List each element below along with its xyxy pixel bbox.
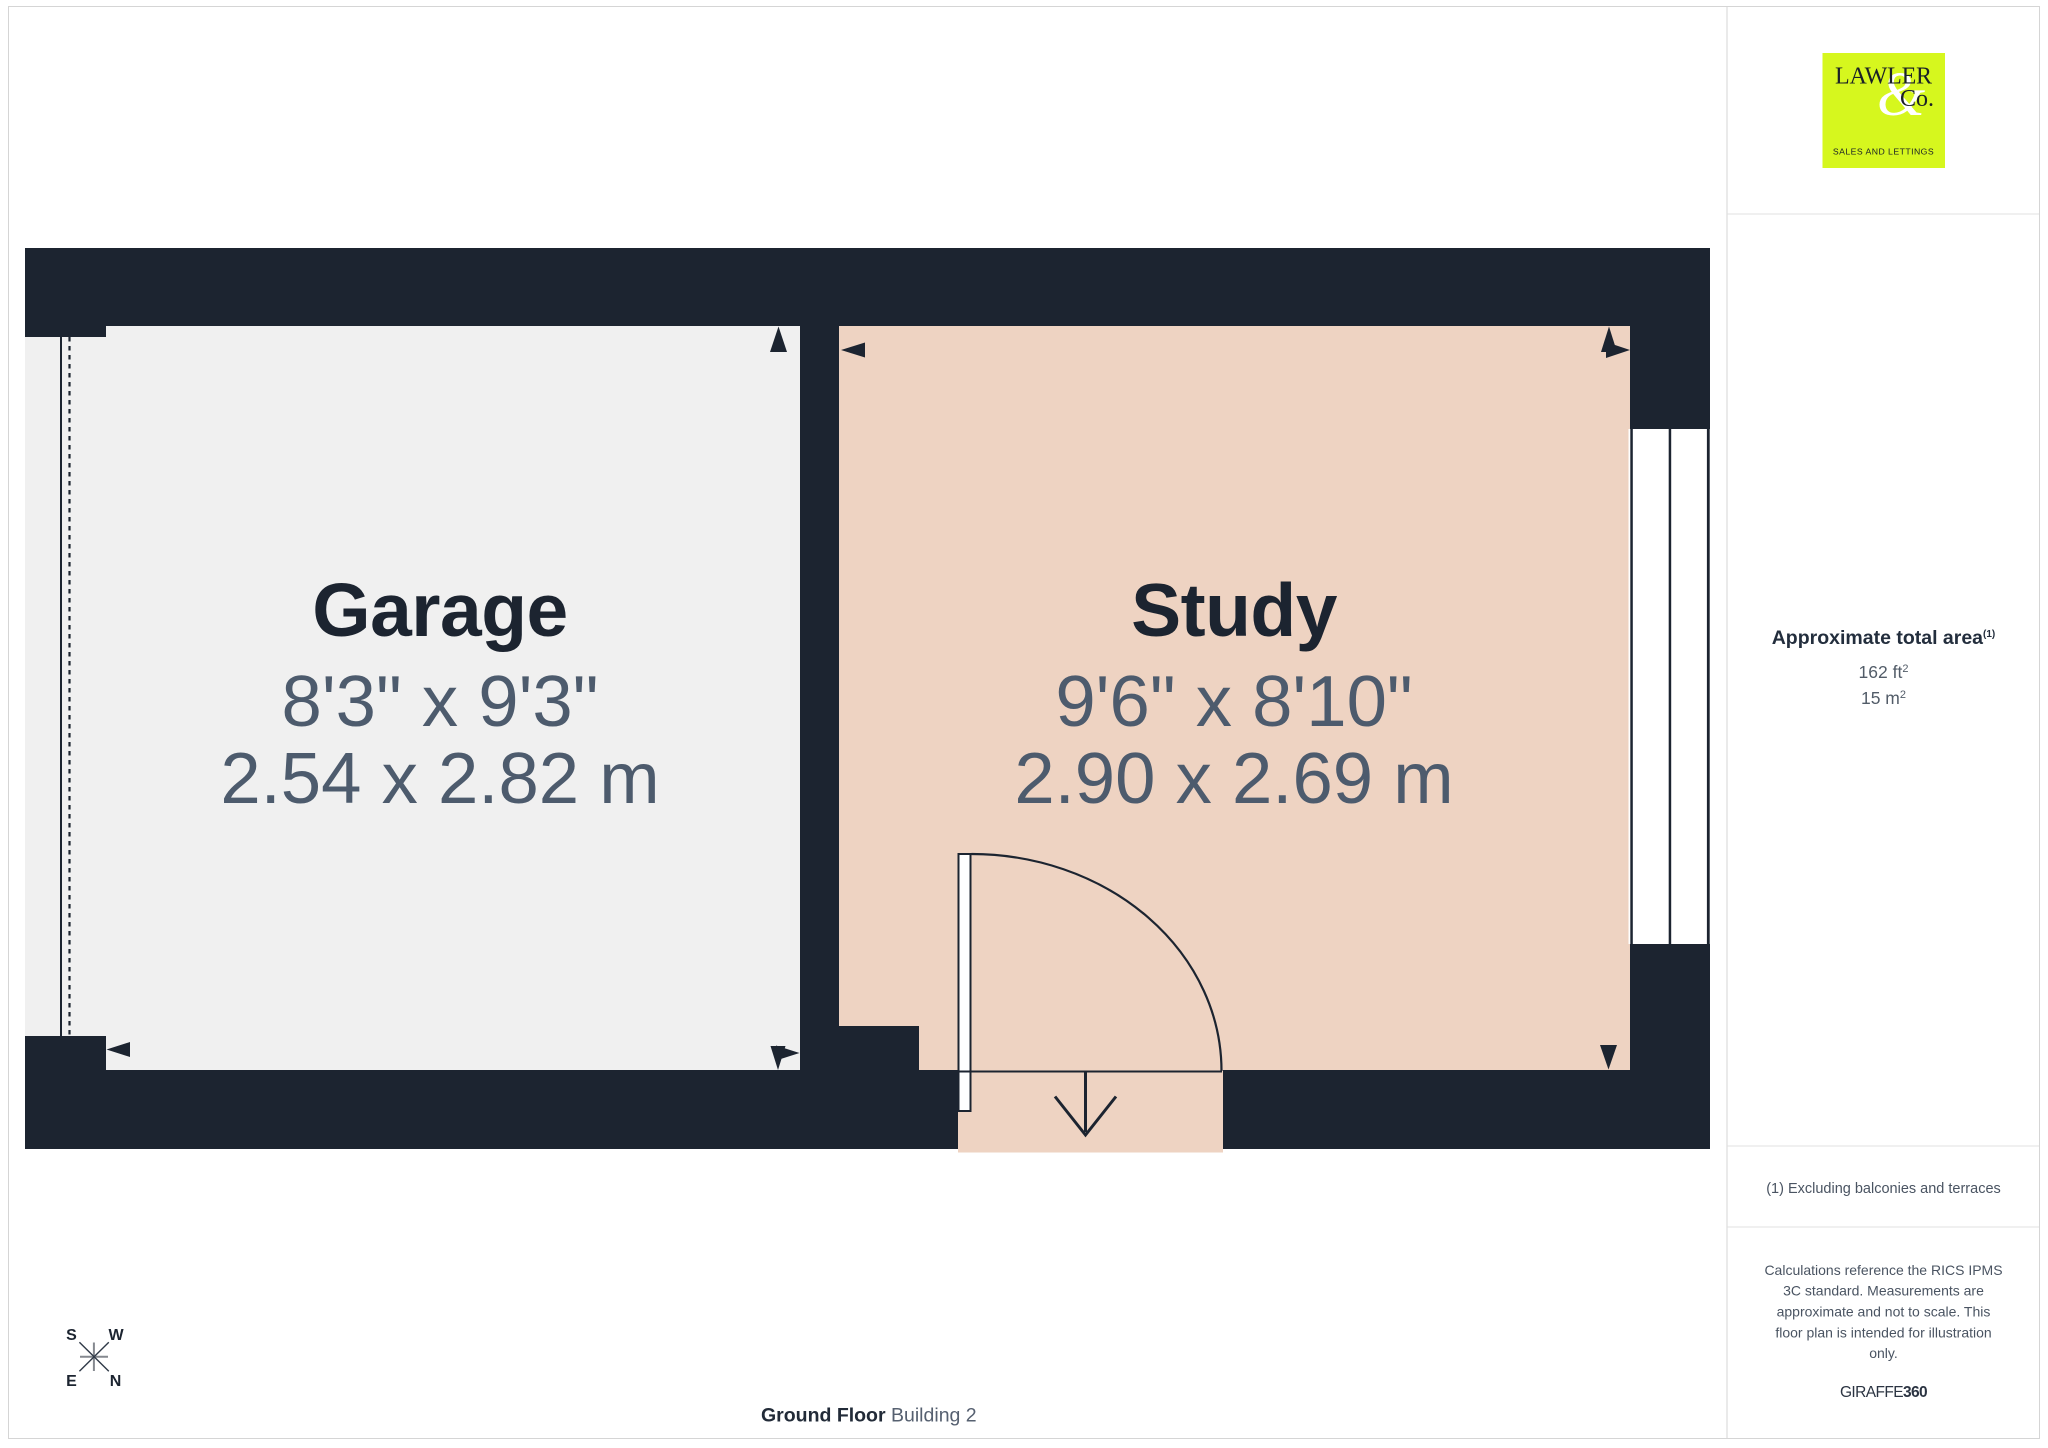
svg-text:Calculations reference the RIC: Calculations reference the RICS IPMS — [1764, 1262, 2002, 1278]
svg-text:(1) Excluding balconies and te: (1) Excluding balconies and terraces — [1766, 1181, 2001, 1197]
svg-text:Building 2: Building 2 — [891, 1405, 977, 1427]
svg-text:2.54 x 2.82 m: 2.54 x 2.82 m — [220, 738, 659, 819]
svg-text:approximate and not to scale.: approximate and not to scale. This — [1777, 1304, 1991, 1320]
svg-text:2.90 x 2.69 m: 2.90 x 2.69 m — [1014, 738, 1453, 819]
svg-text:only.: only. — [1869, 1345, 1898, 1361]
svg-text:floor plan is intended for ill: floor plan is intended for illustration — [1775, 1325, 1991, 1341]
svg-text:GIRAFFE360: GIRAFFE360 — [1840, 1384, 1927, 1401]
svg-text:162 ft2: 162 ft2 — [1859, 662, 1909, 682]
svg-text:9'6" x 8'10": 9'6" x 8'10" — [1055, 661, 1412, 742]
svg-text:SALES AND LETTINGS: SALES AND LETTINGS — [1833, 147, 1934, 157]
svg-text:N: N — [110, 1373, 122, 1390]
svg-text:3C standard. Measurements are: 3C standard. Measurements are — [1783, 1283, 1984, 1299]
svg-text:E: E — [66, 1373, 77, 1390]
svg-text:8'3" x 9'3": 8'3" x 9'3" — [282, 661, 599, 742]
svg-text:W: W — [108, 1327, 124, 1344]
svg-text:Co.: Co. — [1900, 86, 1934, 112]
svg-text:S: S — [66, 1327, 77, 1344]
svg-text:15 m2: 15 m2 — [1861, 688, 1906, 708]
svg-text:Study: Study — [1131, 568, 1338, 652]
svg-text:Ground Floor: Ground Floor — [761, 1405, 886, 1427]
svg-text:Approximate total area(1): Approximate total area(1) — [1772, 627, 1996, 649]
svg-text:Garage: Garage — [312, 568, 567, 652]
